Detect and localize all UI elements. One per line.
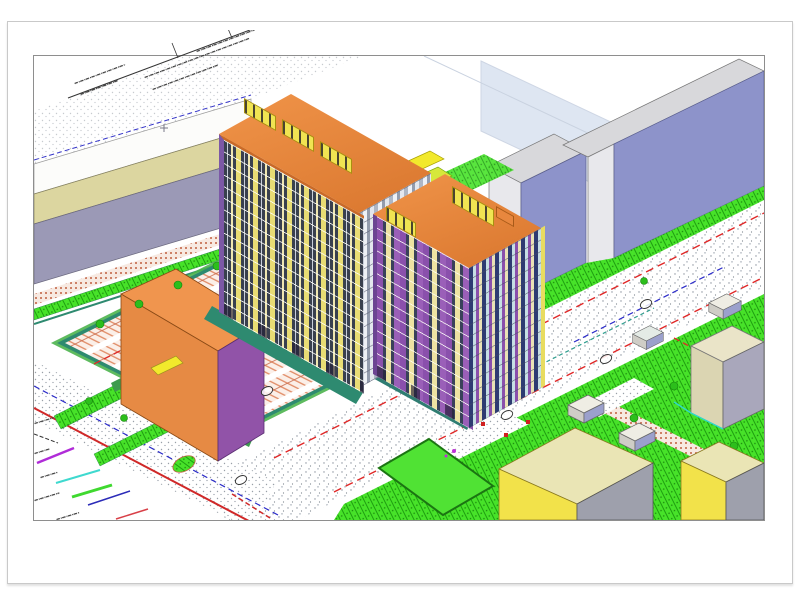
magenta-mark bbox=[445, 455, 448, 458]
slab-end bbox=[588, 144, 614, 271]
legend-line-red bbox=[116, 509, 148, 519]
legend-label-scribble bbox=[40, 471, 58, 479]
entrance-mark bbox=[526, 420, 530, 424]
drawing-frame bbox=[33, 55, 765, 521]
legend-line-green bbox=[72, 485, 112, 497]
legend-line-black bbox=[34, 434, 58, 443]
magenta-mark bbox=[452, 449, 456, 453]
entrance-mark bbox=[504, 433, 508, 437]
legend-label-scribble bbox=[34, 447, 50, 455]
legend-line-cyan bbox=[56, 470, 100, 483]
legend-label-scribble bbox=[34, 491, 60, 501]
entrance-mark bbox=[481, 422, 485, 426]
scanned-drawing-page bbox=[0, 0, 800, 607]
legend-label-scribble bbox=[56, 511, 80, 520]
legend-line-blue bbox=[88, 491, 130, 505]
